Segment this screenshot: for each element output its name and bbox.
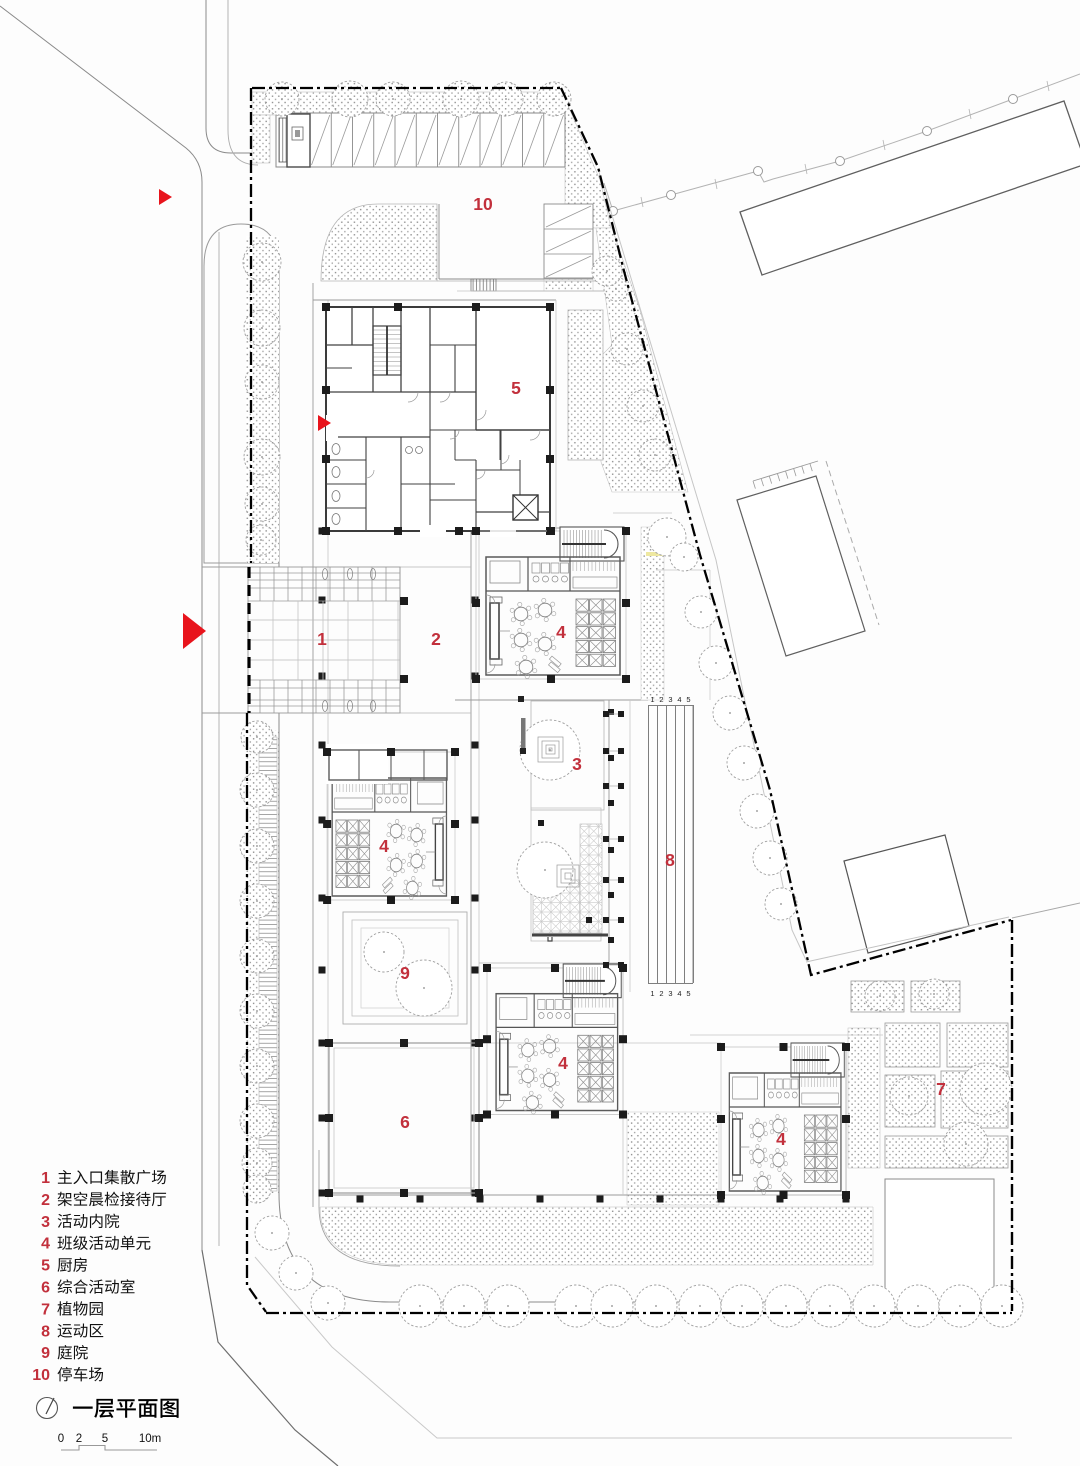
svg-text:7: 7	[41, 1301, 50, 1318]
svg-text:9: 9	[400, 963, 410, 983]
svg-text:5: 5	[41, 1258, 50, 1275]
svg-text:6: 6	[41, 1280, 50, 1297]
svg-text:2: 2	[659, 695, 663, 704]
svg-text:5: 5	[511, 378, 521, 398]
svg-text:2: 2	[431, 629, 441, 649]
svg-text:1: 1	[650, 989, 654, 998]
svg-text:2: 2	[76, 1433, 82, 1445]
svg-text:3: 3	[668, 989, 672, 998]
svg-text:1: 1	[41, 1170, 50, 1187]
svg-text:5: 5	[686, 695, 690, 704]
svg-text:6: 6	[400, 1112, 410, 1132]
svg-text:1: 1	[650, 695, 654, 704]
svg-text:9: 9	[41, 1345, 50, 1362]
svg-text:8: 8	[41, 1323, 50, 1340]
svg-text:3: 3	[41, 1214, 50, 1231]
svg-text:1: 1	[317, 629, 327, 649]
svg-text:0: 0	[58, 1433, 64, 1445]
svg-text:4: 4	[677, 989, 681, 998]
svg-text:8: 8	[665, 850, 675, 870]
svg-text:10: 10	[32, 1367, 50, 1384]
svg-text:3: 3	[668, 695, 672, 704]
svg-text:3: 3	[572, 754, 582, 774]
svg-text:10m: 10m	[139, 1433, 161, 1445]
svg-text:5: 5	[102, 1433, 108, 1445]
svg-text:4: 4	[677, 695, 681, 704]
svg-text:5: 5	[686, 989, 690, 998]
svg-text:4: 4	[776, 1129, 786, 1149]
svg-text:4: 4	[556, 622, 566, 642]
svg-text:4: 4	[558, 1053, 568, 1073]
svg-text:4: 4	[379, 836, 389, 856]
svg-text:2: 2	[41, 1192, 50, 1209]
svg-text:10: 10	[473, 194, 493, 214]
svg-text:7: 7	[936, 1079, 946, 1099]
svg-text:4: 4	[41, 1236, 50, 1253]
svg-text:2: 2	[659, 989, 663, 998]
